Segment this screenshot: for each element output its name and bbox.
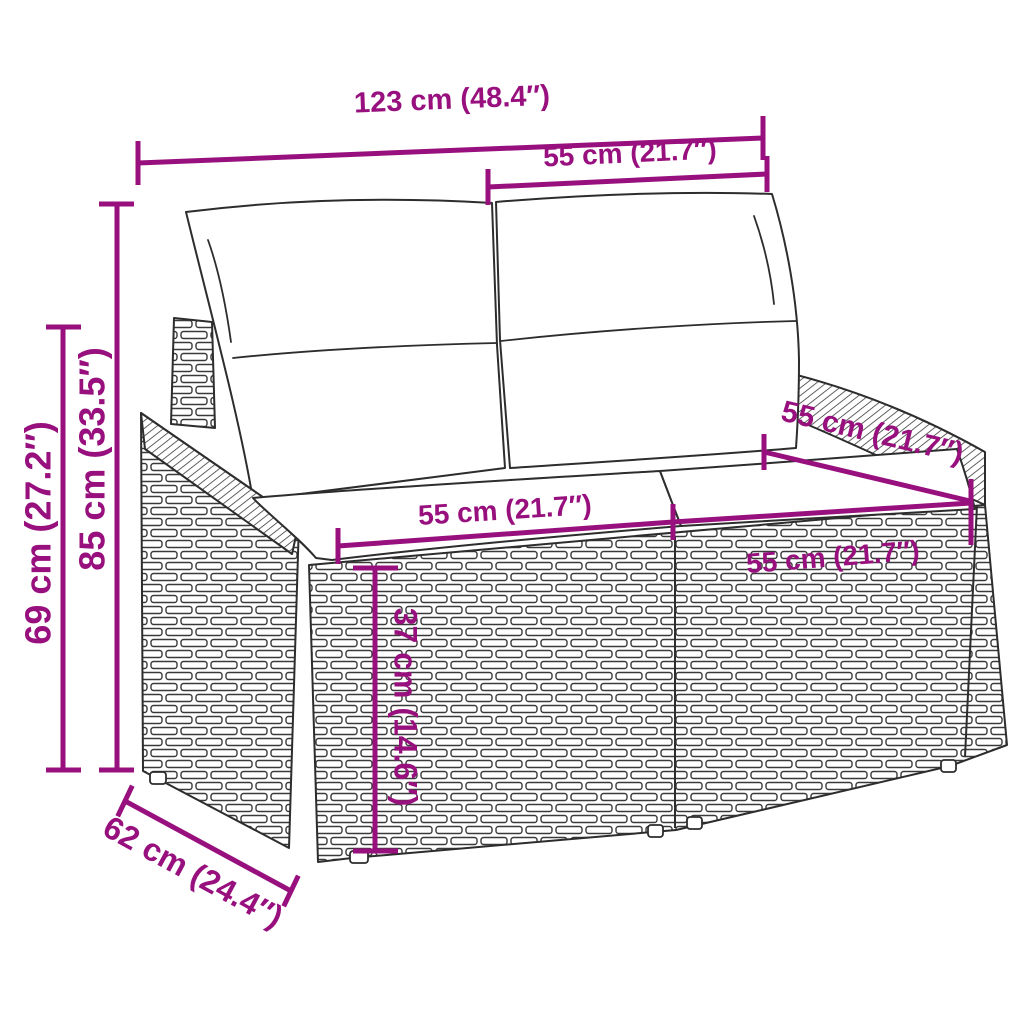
dimension-line xyxy=(488,174,767,187)
sofa-foot xyxy=(150,772,166,784)
sofa-foot xyxy=(941,760,956,772)
dimension-label: 37 cm (14.6″) xyxy=(388,608,424,807)
dimension-back-height: 85 cm (33.5″) xyxy=(72,204,134,770)
back-cushion-right xyxy=(496,193,799,468)
sofa-foot xyxy=(648,825,663,837)
dimension-label: 55 cm (21.7″) xyxy=(542,133,717,172)
dimension-label: 123 cm (48.4″) xyxy=(353,80,550,120)
dimension-total-width: 123 cm (48.4″) xyxy=(138,80,763,185)
sofa-foot xyxy=(687,817,702,829)
dimension-label: 85 cm (33.5″) xyxy=(72,347,113,570)
back-post-left xyxy=(171,318,215,428)
dimension-label: 69 cm (27.2″) xyxy=(18,421,59,644)
product-dimension-diagram: 123 cm (48.4″) 55 cm (21.7″) 85 cm (33.5… xyxy=(0,0,1024,1024)
diagram-canvas: 123 cm (48.4″) 55 cm (21.7″) 85 cm (33.5… xyxy=(0,0,1024,1024)
